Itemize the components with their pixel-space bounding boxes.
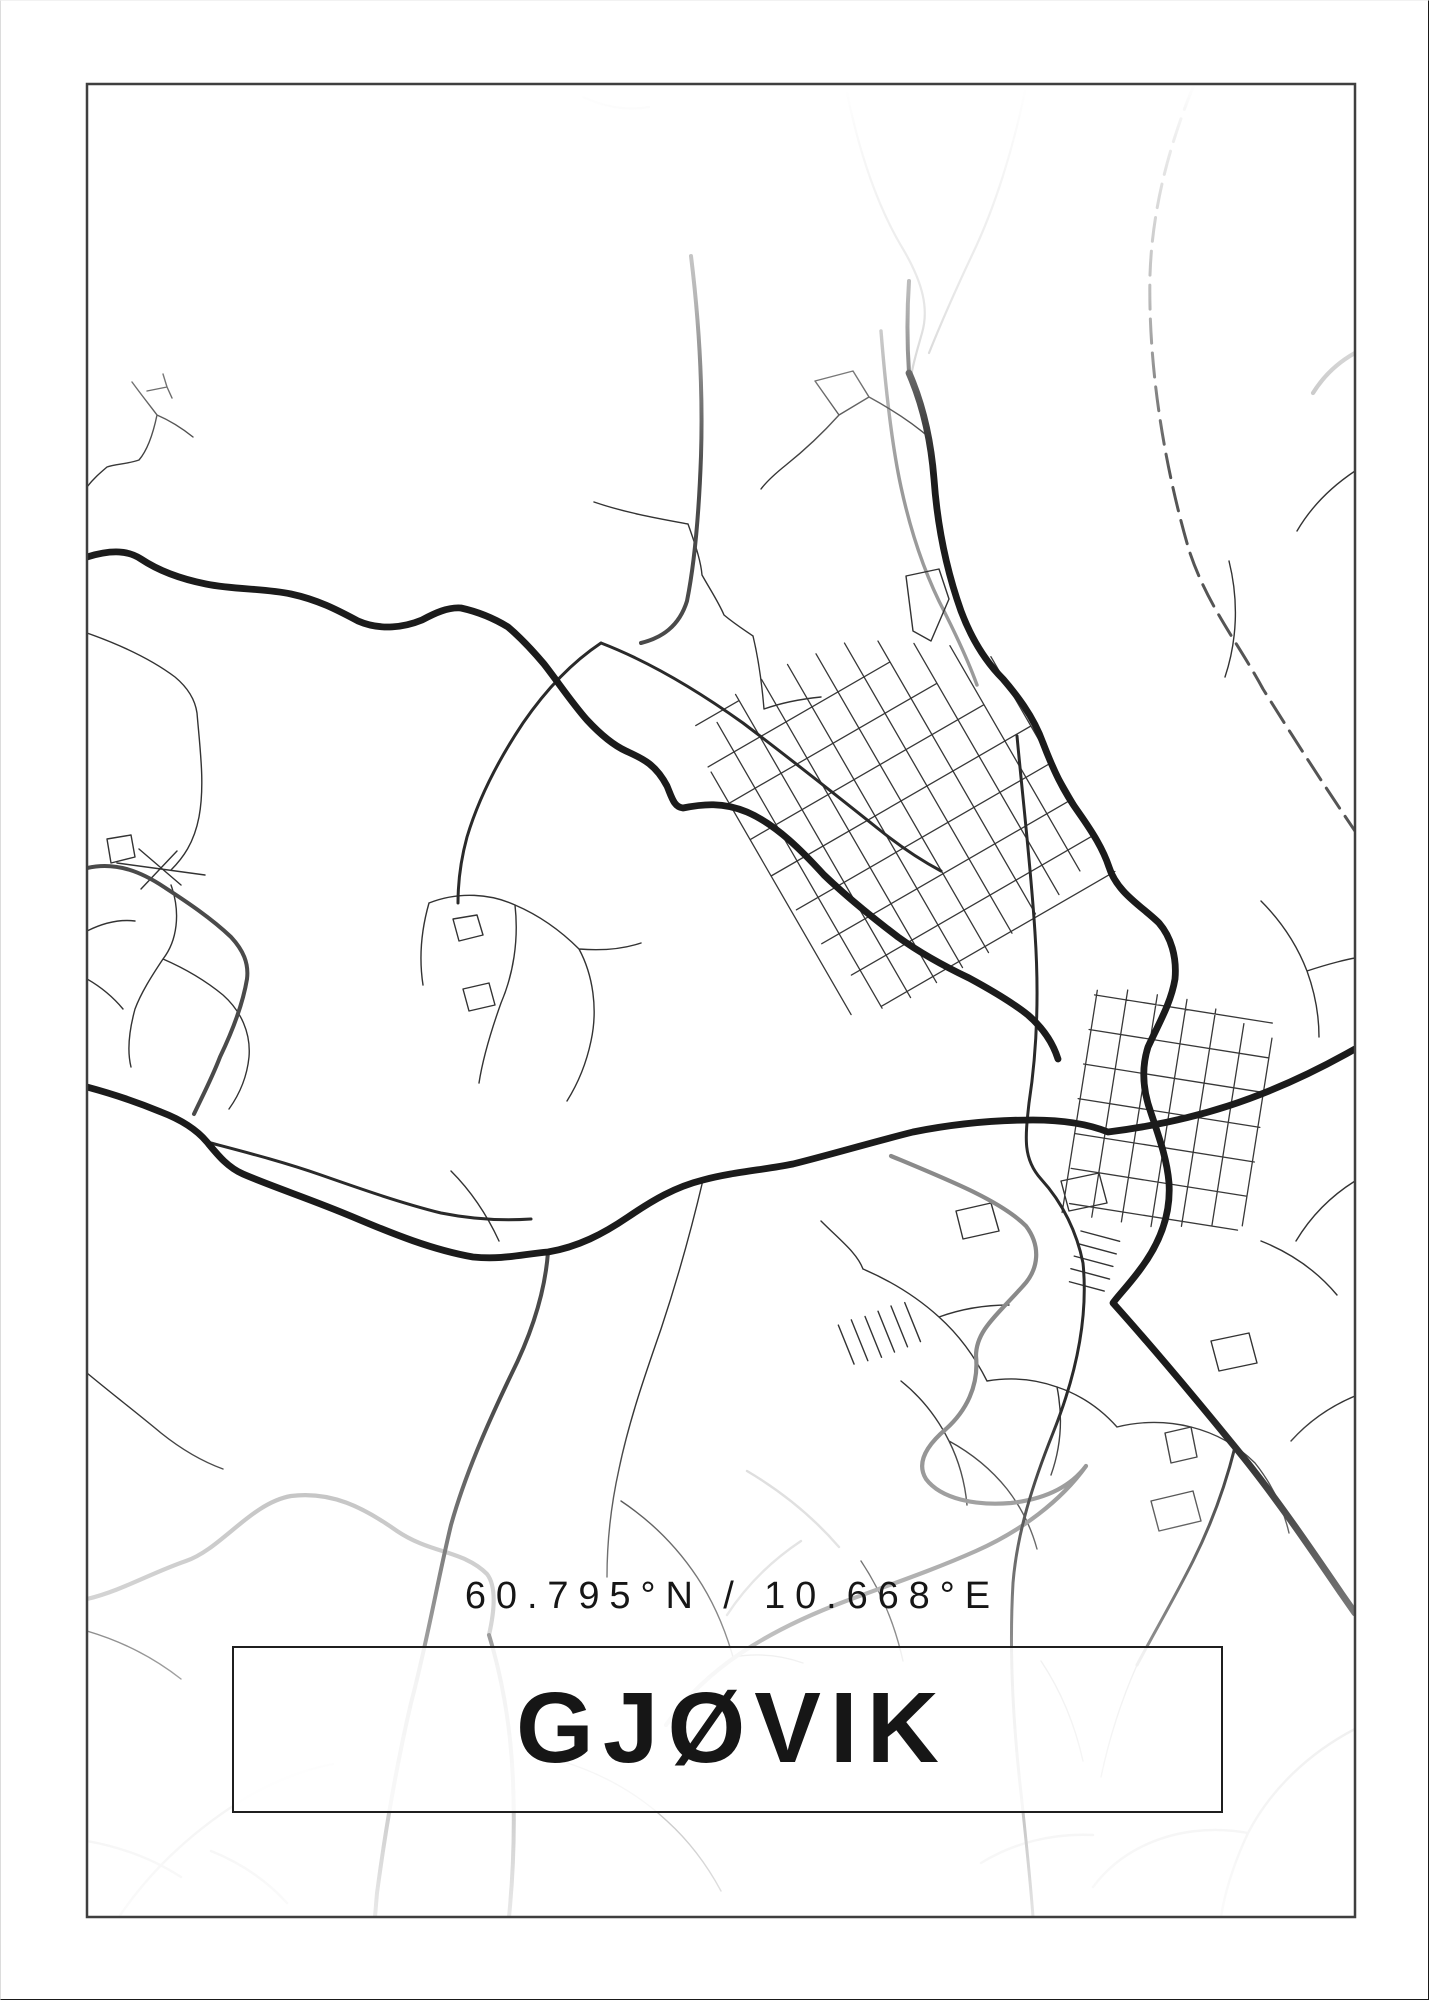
city-name-plate: GJØVIK: [232, 1646, 1223, 1813]
street-grid-north: [684, 574, 1119, 1027]
minor-streets-center: [421, 371, 1355, 1577]
coordinates-label: 60.795°N / 10.668°E: [232, 1577, 1223, 1615]
poster: 60.795°N / 10.668°E GJØVIK: [0, 0, 1429, 2000]
top-fade: [87, 84, 1355, 474]
block-hatch-west: [838, 1299, 920, 1368]
minor-streets-west: [87, 374, 249, 1469]
city-name: GJØVIK: [507, 1678, 948, 1778]
map-roads: [87, 84, 1355, 1917]
